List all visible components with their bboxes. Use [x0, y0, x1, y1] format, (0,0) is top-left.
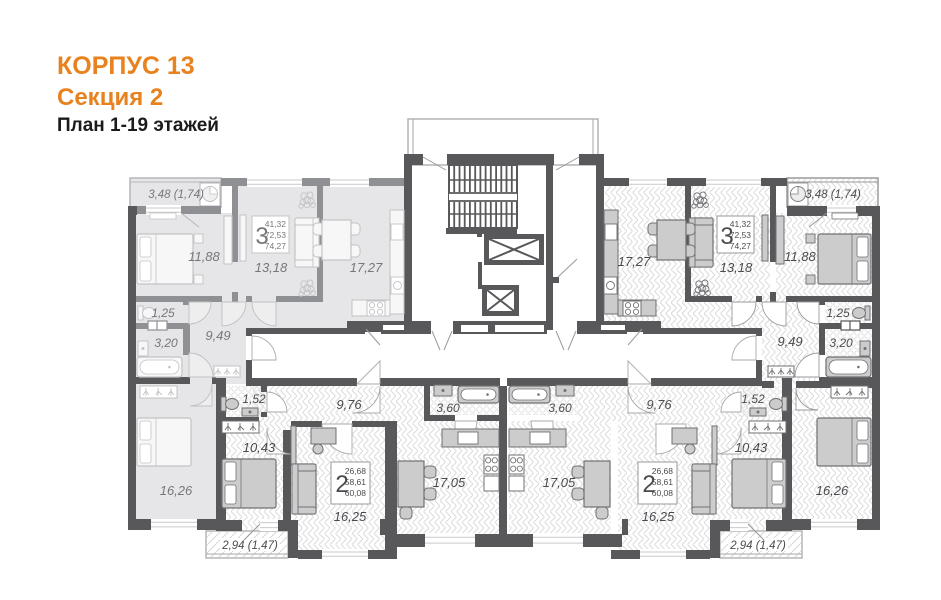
- svg-text:3,20: 3,20: [829, 336, 853, 350]
- svg-text:1,25: 1,25: [151, 306, 175, 320]
- svg-text:74,27: 74,27: [730, 241, 752, 251]
- svg-text:1,52: 1,52: [242, 392, 266, 406]
- svg-text:60,08: 60,08: [345, 488, 367, 498]
- svg-text:58,61: 58,61: [345, 477, 367, 487]
- svg-text:Секция 2: Секция 2: [57, 84, 163, 111]
- svg-text:17,05: 17,05: [543, 475, 576, 490]
- svg-text:16,26: 16,26: [816, 483, 849, 498]
- svg-text:11,88: 11,88: [784, 249, 816, 264]
- svg-text:26,68: 26,68: [345, 466, 367, 476]
- svg-text:13,18: 13,18: [720, 260, 753, 275]
- svg-text:17,27: 17,27: [618, 254, 651, 269]
- svg-text:11,88: 11,88: [188, 249, 220, 264]
- svg-text:1,52: 1,52: [741, 392, 765, 406]
- svg-text:72,53: 72,53: [730, 230, 752, 240]
- svg-text:9,76: 9,76: [646, 397, 672, 412]
- svg-text:9,49: 9,49: [205, 328, 230, 343]
- svg-text:2,94 (1,47): 2,94 (1,47): [729, 540, 786, 552]
- svg-text:16,25: 16,25: [642, 509, 675, 524]
- svg-text:2,94 (1,47): 2,94 (1,47): [221, 540, 278, 552]
- svg-text:9,76: 9,76: [336, 397, 362, 412]
- svg-text:26,68: 26,68: [652, 466, 674, 476]
- svg-text:72,53: 72,53: [265, 230, 287, 240]
- svg-text:КОРПУС 13: КОРПУС 13: [57, 52, 195, 80]
- svg-text:41,32: 41,32: [730, 219, 752, 229]
- svg-text:10,43: 10,43: [735, 440, 768, 455]
- svg-text:9,49: 9,49: [777, 334, 802, 349]
- svg-text:3,20: 3,20: [154, 336, 178, 350]
- svg-text:60,08: 60,08: [652, 488, 674, 498]
- svg-text:1,25: 1,25: [826, 306, 850, 320]
- svg-text:3,48 (1,74): 3,48 (1,74): [148, 189, 204, 201]
- svg-text:План 1-19 этажей: План 1-19 этажей: [57, 115, 219, 136]
- svg-text:16,26: 16,26: [160, 483, 193, 498]
- svg-text:16,25: 16,25: [334, 509, 367, 524]
- svg-text:3,60: 3,60: [436, 401, 460, 415]
- svg-text:58,61: 58,61: [652, 477, 674, 487]
- svg-text:17,05: 17,05: [433, 475, 466, 490]
- svg-text:41,32: 41,32: [265, 219, 287, 229]
- svg-text:3,48 (1,74): 3,48 (1,74): [805, 189, 861, 201]
- svg-text:13,18: 13,18: [255, 260, 288, 275]
- svg-text:10,43: 10,43: [243, 440, 276, 455]
- svg-text:17,27: 17,27: [350, 260, 383, 275]
- svg-text:3,60: 3,60: [548, 401, 572, 415]
- svg-text:74,27: 74,27: [265, 241, 287, 251]
